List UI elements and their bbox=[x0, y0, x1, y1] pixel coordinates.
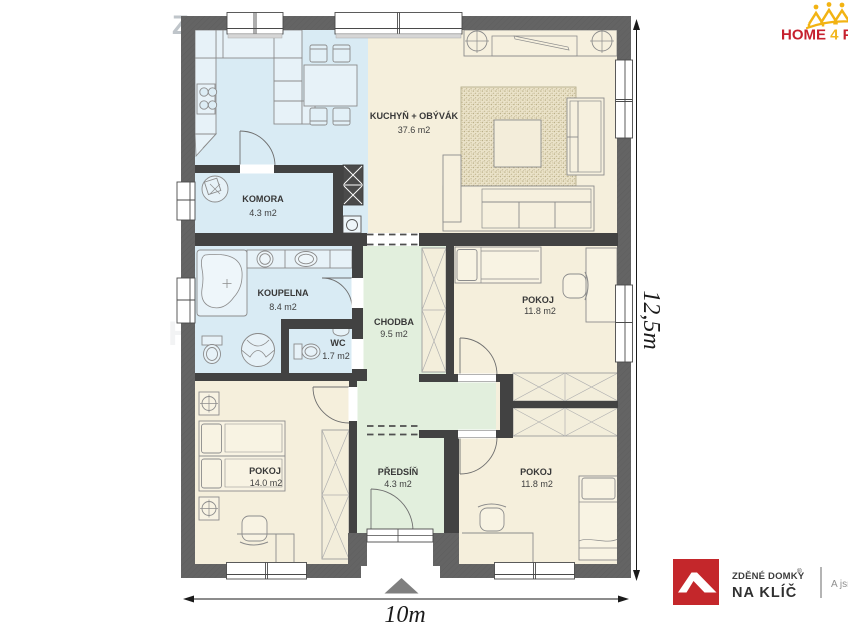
svg-text:4.3 m2: 4.3 m2 bbox=[249, 208, 277, 218]
svg-text:KOUPELNA: KOUPELNA bbox=[257, 288, 308, 298]
svg-text:POKOJ: POKOJ bbox=[249, 466, 281, 476]
svg-text:KOMORA: KOMORA bbox=[242, 194, 284, 204]
svg-text:WC: WC bbox=[330, 338, 346, 348]
svg-text:POKOJ: POKOJ bbox=[520, 467, 552, 477]
svg-text:ZDĚNÉ DOMKY: ZDĚNÉ DOMKY bbox=[732, 570, 805, 582]
svg-text:POKOJ: POKOJ bbox=[522, 295, 554, 305]
svg-text:9.5 m2: 9.5 m2 bbox=[380, 329, 408, 339]
svg-text:1.7 m2: 1.7 m2 bbox=[322, 351, 350, 361]
svg-text:14.0 m2: 14.0 m2 bbox=[250, 478, 283, 488]
svg-text:HOME 4 P: HOME 4 P bbox=[781, 27, 848, 44]
svg-text:10m: 10m bbox=[384, 602, 425, 628]
svg-text:NA KLÍČ: NA KLÍČ bbox=[732, 583, 797, 601]
svg-text:12,5m: 12,5m bbox=[638, 290, 664, 349]
svg-text:A jsm: A jsm bbox=[831, 579, 848, 590]
svg-text:4.3 m2: 4.3 m2 bbox=[384, 479, 412, 489]
svg-text:®: ® bbox=[797, 567, 802, 575]
svg-text:PŘEDSÍŇ: PŘEDSÍŇ bbox=[378, 466, 418, 477]
svg-text:37.6 m2: 37.6 m2 bbox=[398, 125, 431, 135]
svg-text:KUCHYŇ + OBÝVÁK: KUCHYŇ + OBÝVÁK bbox=[370, 110, 459, 121]
svg-text:8.4 m2: 8.4 m2 bbox=[269, 302, 297, 312]
svg-text:11.8 m2: 11.8 m2 bbox=[524, 306, 556, 316]
svg-text:11.8 m2: 11.8 m2 bbox=[521, 479, 553, 489]
svg-text:CHODBA: CHODBA bbox=[374, 317, 414, 327]
